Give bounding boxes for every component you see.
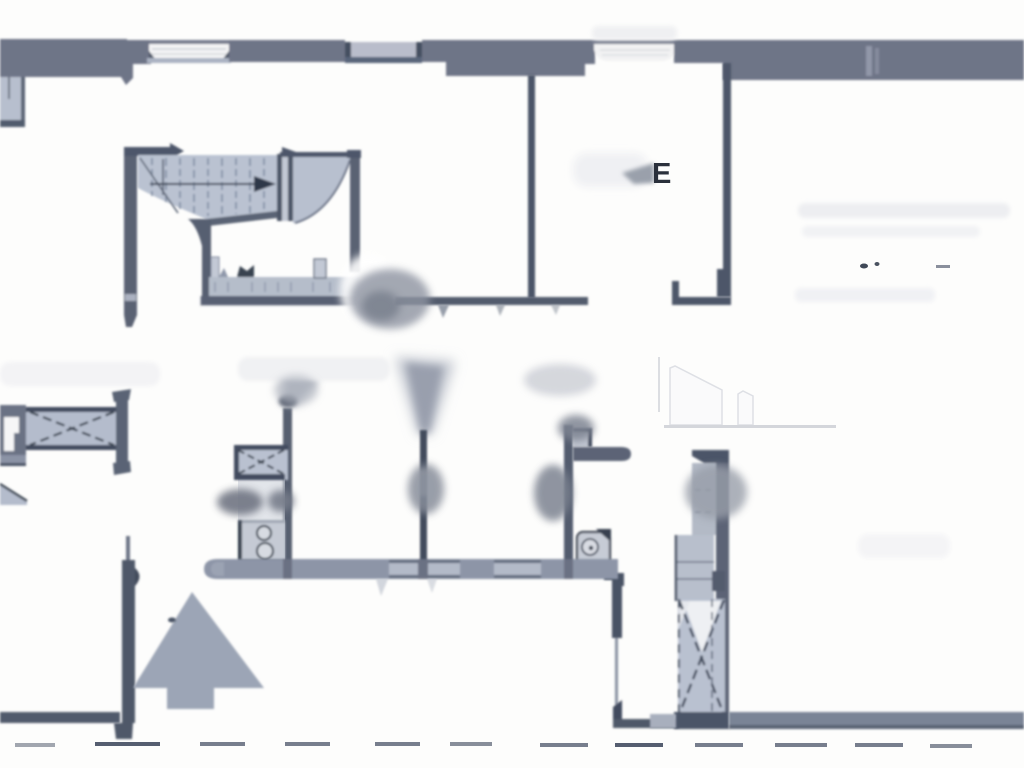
svg-text:E: E [652, 158, 671, 190]
